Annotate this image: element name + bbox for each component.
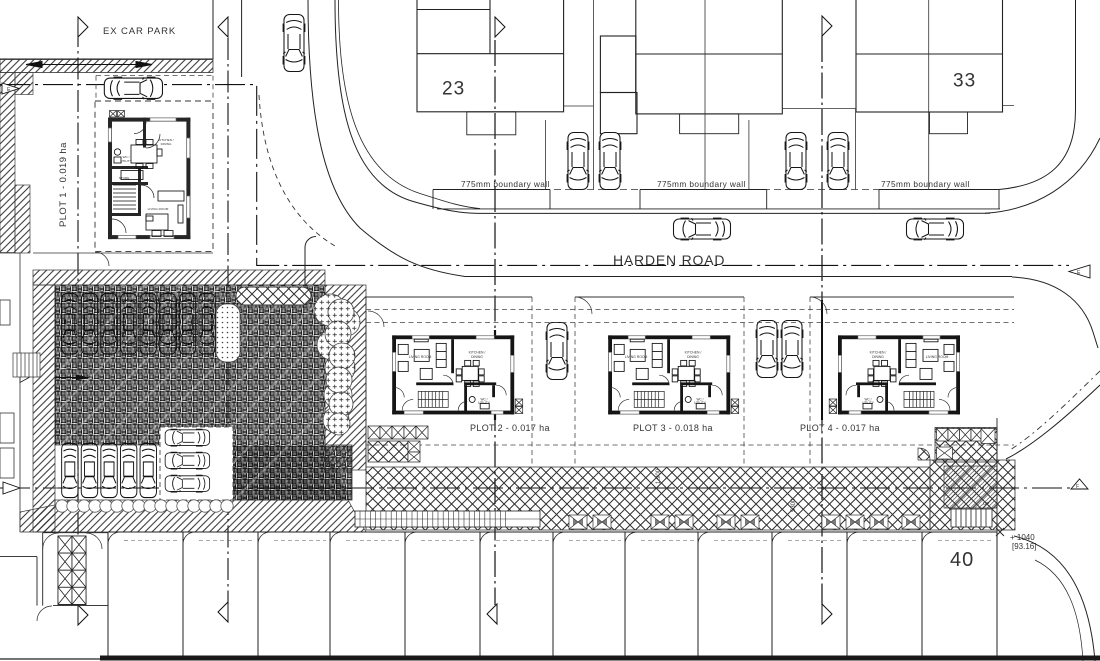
svg-text:UP: UP (983, 501, 989, 506)
svg-text:LIVING ROOM: LIVING ROOM (148, 207, 169, 211)
svg-text:DINING: DINING (872, 355, 884, 359)
svg-text:UTILITY: UTILITY (862, 401, 875, 405)
svg-text:23: 23 (442, 79, 465, 100)
svg-text:PLOT 3 - 0.018 ha: PLOT 3 - 0.018 ha (633, 423, 713, 433)
svg-text:PLOT 1 - 0.019 ha: PLOT 1 - 0.019 ha (58, 142, 69, 227)
svg-text:STORE: STORE (119, 176, 130, 180)
svg-text:1.900: 1.900 (656, 468, 662, 484)
svg-text:LIVING ROOM: LIVING ROOM (409, 355, 432, 359)
svg-text:KITCHEN /: KITCHEN / (685, 351, 702, 355)
svg-text:775mm boundary wall: 775mm boundary wall (657, 179, 746, 189)
svg-text:+ 1040: + 1040 (1010, 533, 1035, 542)
svg-text:DINING: DINING (161, 142, 172, 146)
svg-text:40: 40 (950, 549, 974, 571)
svg-text:PLOT 2 - 0.017 ha: PLOT 2 - 0.017 ha (470, 423, 550, 433)
svg-text:HARDEN ROAD: HARDEN ROAD (613, 252, 725, 268)
svg-text:UTILITY: UTILITY (120, 159, 132, 163)
svg-text:KITCHEN /: KITCHEN / (469, 351, 486, 355)
svg-text:DINING: DINING (471, 355, 483, 359)
svg-text:LIVING ROOM: LIVING ROOM (625, 355, 648, 359)
svg-text:33: 33 (953, 71, 976, 92)
svg-text:UTILITY: UTILITY (694, 401, 707, 405)
svg-text:F: F (1076, 484, 1079, 490)
svg-text:[93.16]: [93.16] (1012, 542, 1036, 551)
svg-text:775mm boundary wall: 775mm boundary wall (881, 179, 970, 189)
svg-text:PLOT 4 - 0.017 ha: PLOT 4 - 0.017 ha (800, 423, 880, 433)
svg-text:UTILITY: UTILITY (478, 401, 491, 405)
svg-text:DINING: DINING (687, 355, 699, 359)
svg-text:775mm boundary wall: 775mm boundary wall (461, 179, 550, 189)
svg-text:KITCHEN /: KITCHEN / (870, 351, 887, 355)
svg-text:5300: 5300 (791, 498, 797, 512)
svg-text:LIVING ROOM: LIVING ROOM (926, 355, 949, 359)
svg-text:EX CAR PARK: EX CAR PARK (103, 26, 176, 37)
